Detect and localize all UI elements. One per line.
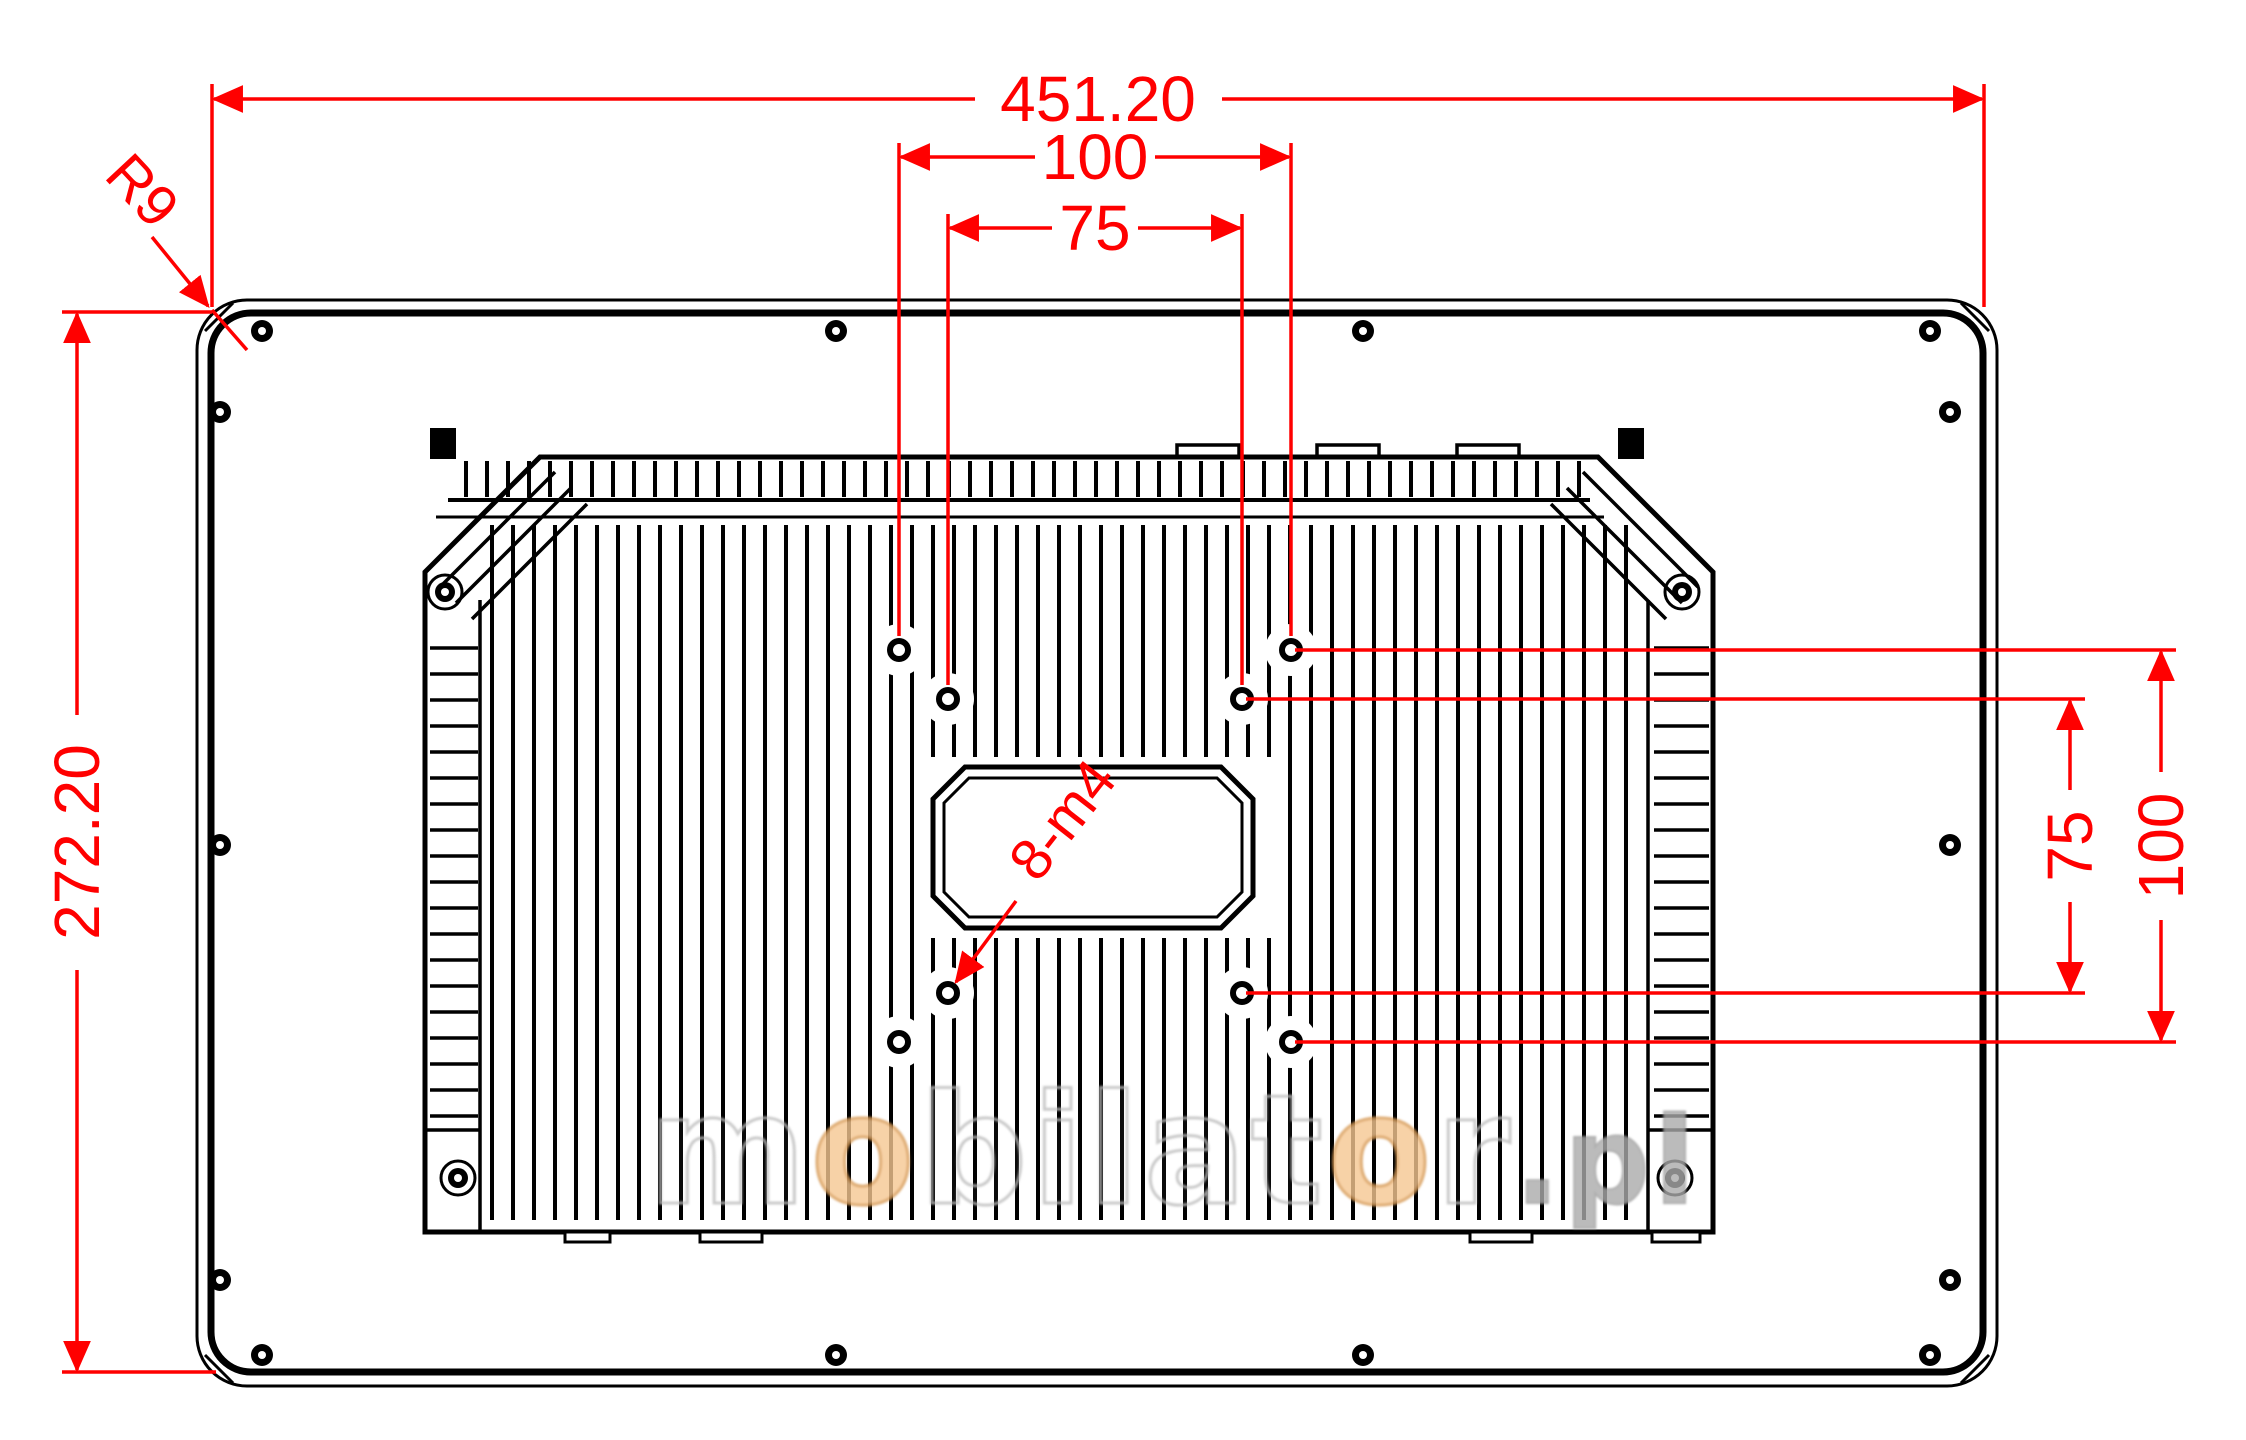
screw-icon [825,1344,847,1366]
screw-icon [251,1344,273,1366]
overall-height-label: 272.20 [41,744,113,940]
vesa75-top-label: 75 [1059,192,1130,264]
vesa100-hole-bottom-left [890,1033,908,1051]
screw-icon [1352,320,1374,342]
corner-radius-label: R9 [93,141,191,240]
vesa100-top-label: 100 [1042,121,1149,193]
vesa75-hole-top-left [939,690,957,708]
vesa100-hole-top-left [890,641,908,659]
screw-icon [1919,1344,1941,1366]
screw-icon [1919,320,1941,342]
technical-drawing-canvas: 451.20 100 75 272.20 75 100 R9 8-m4 mobi… [0,0,2246,1440]
screw-icon [209,1269,231,1291]
heatsink-top-tab-left [430,428,456,459]
screw-icon [209,401,231,423]
vesa100-right-label: 100 [2125,793,2197,900]
vesa75-right-label: 75 [2034,810,2106,881]
screw-icon [1939,401,1961,423]
heatsink-top-tab-right [1618,428,1644,459]
screw-icon [1939,834,1961,856]
screw-icon [825,320,847,342]
screw-icon [251,320,273,342]
screw-icon [1352,1344,1374,1366]
screw-icon [1939,1269,1961,1291]
panel-pc-rear-dimension-drawing: 451.20 100 75 272.20 75 100 R9 8-m4 [0,0,2246,1440]
screw-icon [209,834,231,856]
vesa75-hole-bottom-left [939,984,957,1002]
